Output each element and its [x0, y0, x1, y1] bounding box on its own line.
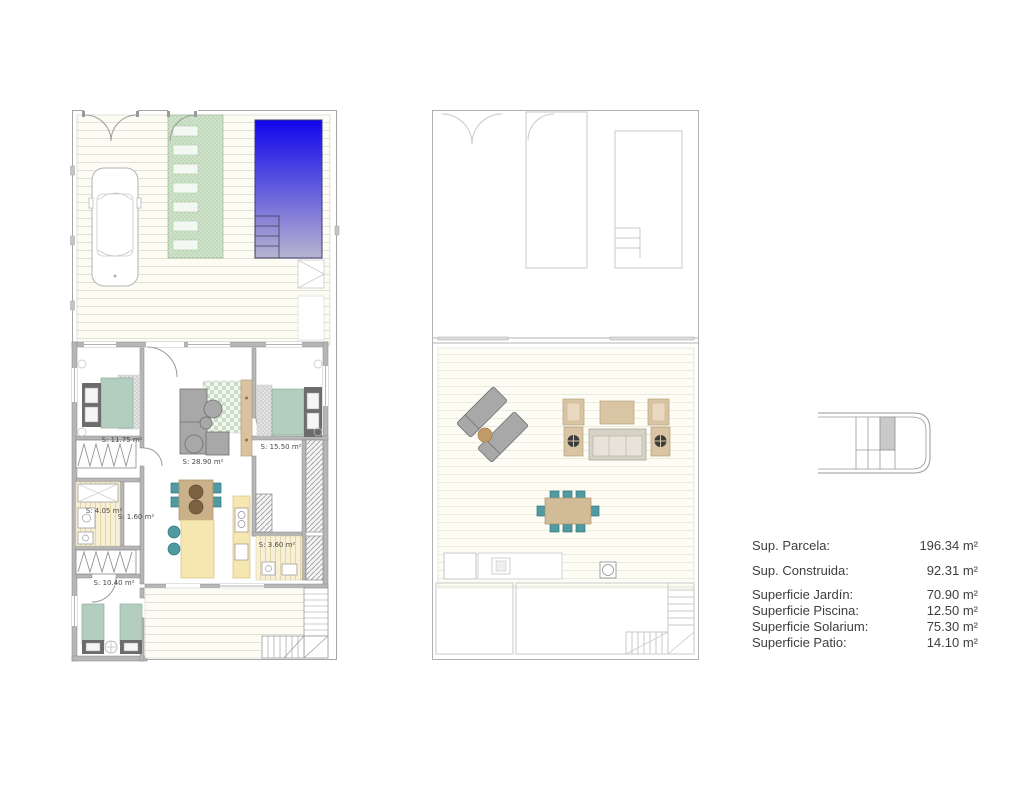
ground-floor-plan: S: 11.75 m² S: 28.90 m² S: 15.50 m² S: 4…: [70, 106, 340, 666]
outdoor-shower: [298, 260, 324, 340]
twin-beds: [82, 604, 142, 654]
toilet: [78, 532, 93, 544]
ghost-pool-outline: [615, 131, 682, 268]
pouf: [200, 417, 212, 429]
barbecue: [600, 562, 616, 578]
legend-label: Sup. Construida:: [752, 563, 849, 579]
bedroom-rug: [257, 385, 272, 436]
room-area-label: S: 11.75 m²: [102, 436, 143, 444]
pouf: [204, 400, 222, 418]
ghost-pool-steps: [615, 228, 640, 258]
living-room: [180, 380, 252, 456]
legend-label: Superficie Patio:: [752, 635, 847, 651]
ghost-patio: [436, 583, 694, 654]
room-area-label: S: 1.60 m²: [118, 513, 154, 521]
solarium-deck: [438, 348, 694, 588]
sideboard: [241, 380, 252, 456]
legend-label: Sup. Parcela:: [752, 538, 830, 554]
ghost-stairs: [626, 583, 694, 654]
legend-value: 92.31 m²: [927, 563, 978, 579]
room-area-label: S: 15.50 m²: [261, 443, 302, 451]
solarium-plan: [430, 106, 702, 666]
legend-label: Superficie Piscina:: [752, 603, 859, 619]
swimming-pool: [255, 120, 322, 258]
dining-table: [171, 480, 221, 520]
legend-value: 12.50 m²: [927, 603, 978, 619]
solarium-drawing: [430, 106, 702, 666]
solarium-front-wall: [432, 337, 698, 343]
stair-detail-svg: [818, 410, 942, 480]
stool: [168, 543, 180, 555]
bed-double-left: [78, 360, 140, 436]
legend-row: Superficie Jardín: 70.90 m²: [752, 587, 978, 603]
legend-row: Superficie Patio: 14.10 m²: [752, 635, 978, 651]
garden-path: [168, 115, 223, 258]
bed-double-right: [257, 360, 322, 437]
kitchen-counter: [233, 496, 250, 578]
sofa-corner-seat: [206, 432, 229, 455]
room-area-label: S: 10.40 m²: [94, 579, 135, 587]
room-area-label: S: 3.60 m²: [259, 541, 295, 549]
room-area-label: S: 4.05 m²: [86, 507, 122, 515]
surface-legend: Sup. Parcela: 196.34 m² Sup. Construida:…: [752, 538, 978, 651]
kitchen-sink: [235, 544, 248, 560]
outdoor-kitchen-counter: [444, 553, 562, 579]
legend-row: Sup. Parcela: 196.34 m²: [752, 538, 978, 554]
legend-label: Superficie Jardín:: [752, 587, 853, 603]
pouf: [185, 435, 203, 453]
legend-row: Superficie Piscina: 12.50 m²: [752, 603, 978, 619]
legend-value: 70.90 m²: [927, 587, 978, 603]
driveway-car: [89, 168, 141, 286]
ghost-level-below: [442, 112, 682, 268]
stair-tread-highlight: [880, 417, 895, 450]
lounge-set: [563, 399, 670, 460]
floorplan-page: S: 11.75 m² S: 28.90 m² S: 15.50 m² S: 4…: [0, 0, 1024, 800]
stool: [168, 526, 180, 538]
legend-row: Superficie Solarium: 75.30 m²: [752, 619, 978, 635]
kitchen-island: [168, 520, 214, 578]
room-area-label: S: 28.90 m²: [183, 458, 224, 466]
stair-detail-drawing: [818, 410, 942, 480]
toilet: [262, 562, 275, 575]
side-table: [478, 428, 492, 442]
legend-label: Superficie Solarium:: [752, 619, 868, 635]
legend-row: Sup. Construida: 92.31 m²: [752, 563, 978, 579]
legend-value: 14.10 m²: [927, 635, 978, 651]
coffee-table: [600, 401, 634, 424]
ghost-path-outline: [526, 112, 587, 268]
legend-value: 75.30 m²: [927, 619, 978, 635]
legend-value: 196.34 m²: [919, 538, 978, 554]
washbasin: [282, 564, 297, 575]
